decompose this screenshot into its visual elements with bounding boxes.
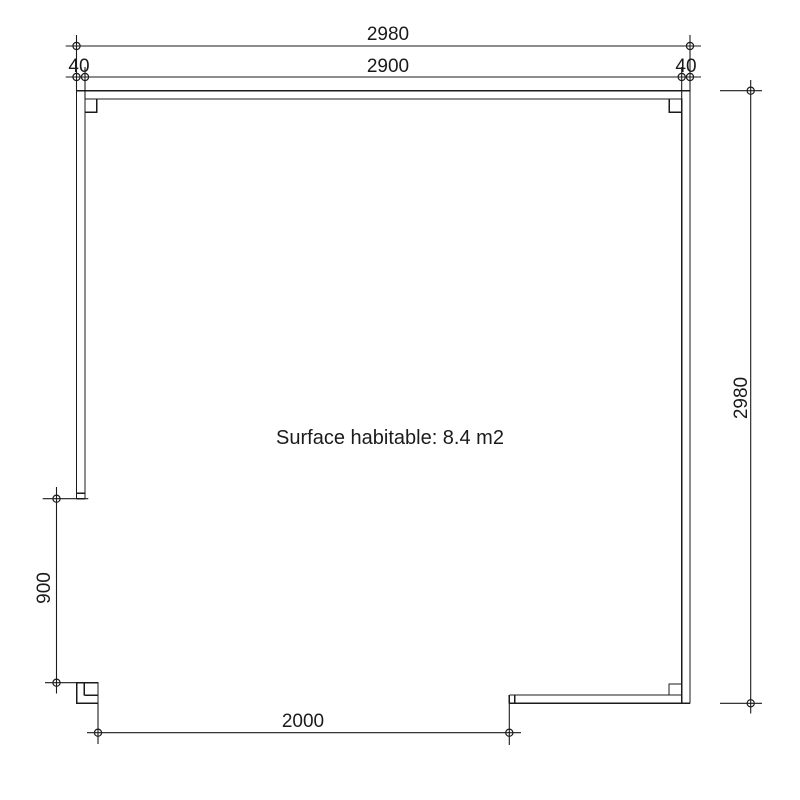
dimension-left-opening: 900 [34,487,88,694]
dimension-overall-height: 2980 [720,80,762,714]
cabin-walls [77,91,691,704]
dim-label-overall-height: 2980 [731,377,752,419]
dimension-door-opening: 2000 [87,703,521,745]
dim-label-inner-width: 2900 [367,56,409,77]
dim-label-overall-width: 2980 [367,24,409,45]
dim-label-wall-right: 40 [675,56,696,77]
area-label: Surface habitable: 8.4 m2 [276,427,504,449]
dim-label-door-opening: 2000 [282,711,324,732]
floor-plan: 2980 2900 40 40 2980 900 2 [0,0,800,800]
dim-label-wall-left: 40 [68,56,89,77]
corner-stub-bottom-left [77,683,98,704]
corner-post-top-right [669,99,681,112]
floor-plan-canvas: 2980 2900 40 40 2980 900 2 [0,0,800,800]
dim-label-left-opening: 900 [34,572,55,604]
dimension-inner-width: 2900 40 40 [66,56,701,99]
corner-post-top-left [85,99,97,112]
corner-post-bottom-right [669,684,682,695]
